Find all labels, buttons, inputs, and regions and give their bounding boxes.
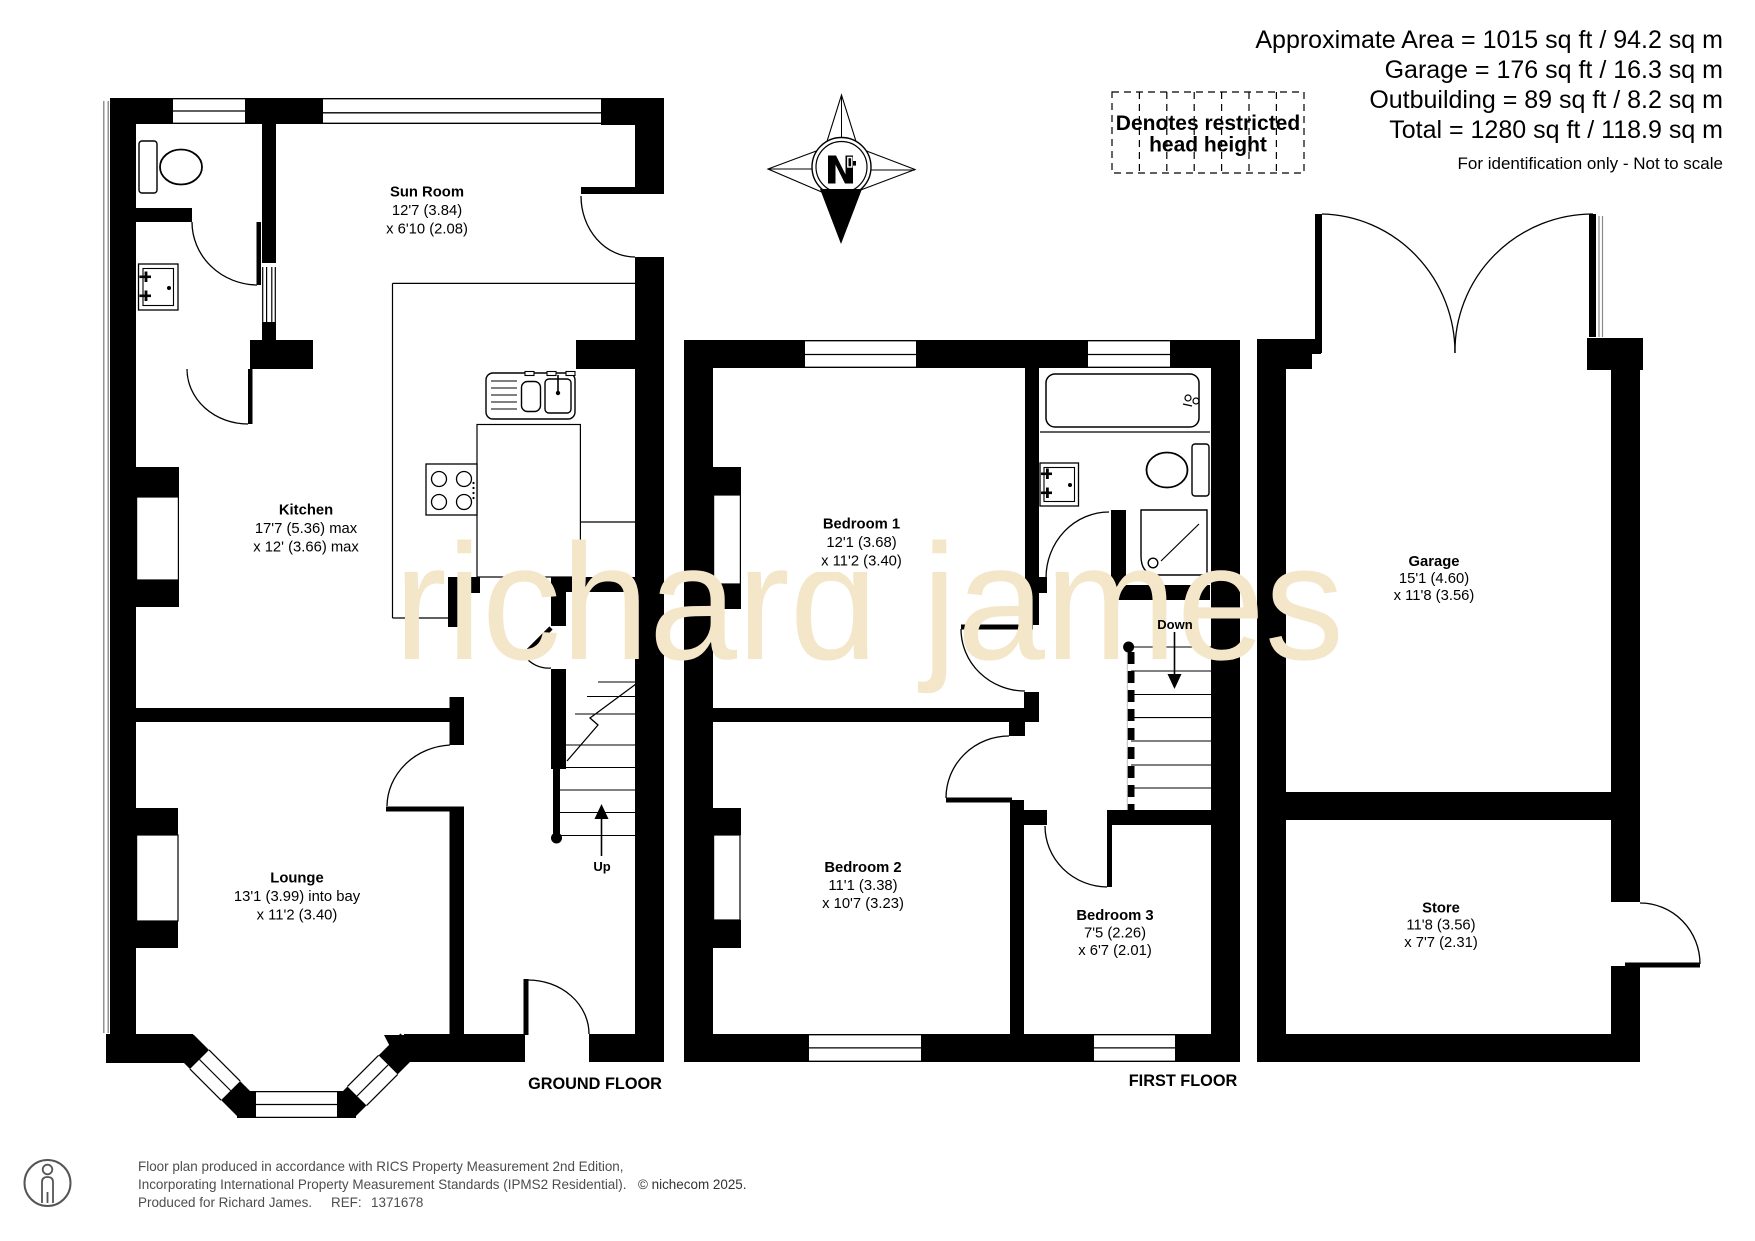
svg-text:Lounge: Lounge: [270, 871, 323, 887]
svg-text:REF:: REF:: [331, 1195, 362, 1210]
svg-text:x 10'7 (3.23): x 10'7 (3.23): [822, 896, 904, 912]
svg-text:1371678: 1371678: [371, 1195, 423, 1210]
svg-text:Approximate Area = 1015 sq ft: Approximate Area = 1015 sq ft / 94.2 sq …: [1255, 26, 1723, 54]
svg-text:Up: Up: [593, 859, 610, 874]
svg-text:Total = 1280 sq ft / 118.9 sq: Total = 1280 sq ft / 118.9 sq m: [1389, 116, 1723, 144]
svg-text:For identification only - Not: For identification only - Not to scale: [1457, 154, 1723, 173]
svg-text:7'5 (2.26): 7'5 (2.26): [1084, 926, 1146, 942]
svg-text:Sun Room: Sun Room: [390, 185, 464, 201]
svg-text:x 12' (3.66) max: x 12' (3.66) max: [253, 540, 359, 556]
svg-text:x 6'7 (2.01): x 6'7 (2.01): [1078, 943, 1152, 959]
svg-text:Garage: Garage: [1409, 554, 1460, 570]
svg-text:Kitchen: Kitchen: [279, 503, 333, 519]
svg-text:Garage = 176 sq ft / 16.3 sq m: Garage = 176 sq ft / 16.3 sq m: [1385, 56, 1723, 84]
svg-text:x 11'2 (3.40): x 11'2 (3.40): [257, 908, 338, 924]
svg-text:12'1 (3.68): 12'1 (3.68): [826, 535, 896, 551]
svg-text:13'1 (3.99) into bay: 13'1 (3.99) into bay: [234, 889, 361, 905]
svg-text:Floor plan produced in accorda: Floor plan produced in accordance with R…: [138, 1159, 624, 1174]
svg-text:15'1 (4.60): 15'1 (4.60): [1399, 571, 1469, 587]
svg-text:x 11'8 (3.56): x 11'8 (3.56): [1394, 588, 1475, 604]
svg-text:Bedroom 1: Bedroom 1: [823, 517, 900, 533]
svg-text:x 6'10 (2.08): x 6'10 (2.08): [386, 222, 468, 238]
svg-text:head height: head height: [1149, 134, 1267, 157]
svg-text:Outbuilding = 89 sq ft / 8.2 s: Outbuilding = 89 sq ft / 8.2 sq m: [1369, 86, 1723, 114]
svg-text:Down: Down: [1157, 617, 1192, 632]
svg-text:x 7'7 (2.31): x 7'7 (2.31): [1404, 935, 1478, 951]
svg-text:11'8 (3.56): 11'8 (3.56): [1406, 918, 1475, 934]
svg-text:Produced for Richard James.: Produced for Richard James.: [138, 1195, 312, 1210]
svg-text:Denotes restricted: Denotes restricted: [1116, 112, 1300, 135]
svg-text:Incorporating International Pr: Incorporating International Property Mea…: [138, 1177, 626, 1192]
svg-text:11'1 (3.38): 11'1 (3.38): [828, 878, 897, 894]
svg-text:17'7 (5.36) max: 17'7 (5.36) max: [255, 521, 358, 537]
svg-text:Bedroom 3: Bedroom 3: [1076, 908, 1153, 924]
svg-text:FIRST FLOOR: FIRST FLOOR: [1129, 1072, 1238, 1090]
svg-text:Bedroom 2: Bedroom 2: [824, 860, 901, 876]
svg-text:GROUND FLOOR: GROUND FLOOR: [528, 1075, 662, 1093]
svg-text:Store: Store: [1422, 901, 1460, 917]
svg-text:x 11'2 (3.40): x 11'2 (3.40): [821, 554, 902, 570]
svg-text:© nichecom 2025.: © nichecom 2025.: [638, 1177, 747, 1192]
svg-text:12'7 (3.84): 12'7 (3.84): [392, 203, 462, 219]
